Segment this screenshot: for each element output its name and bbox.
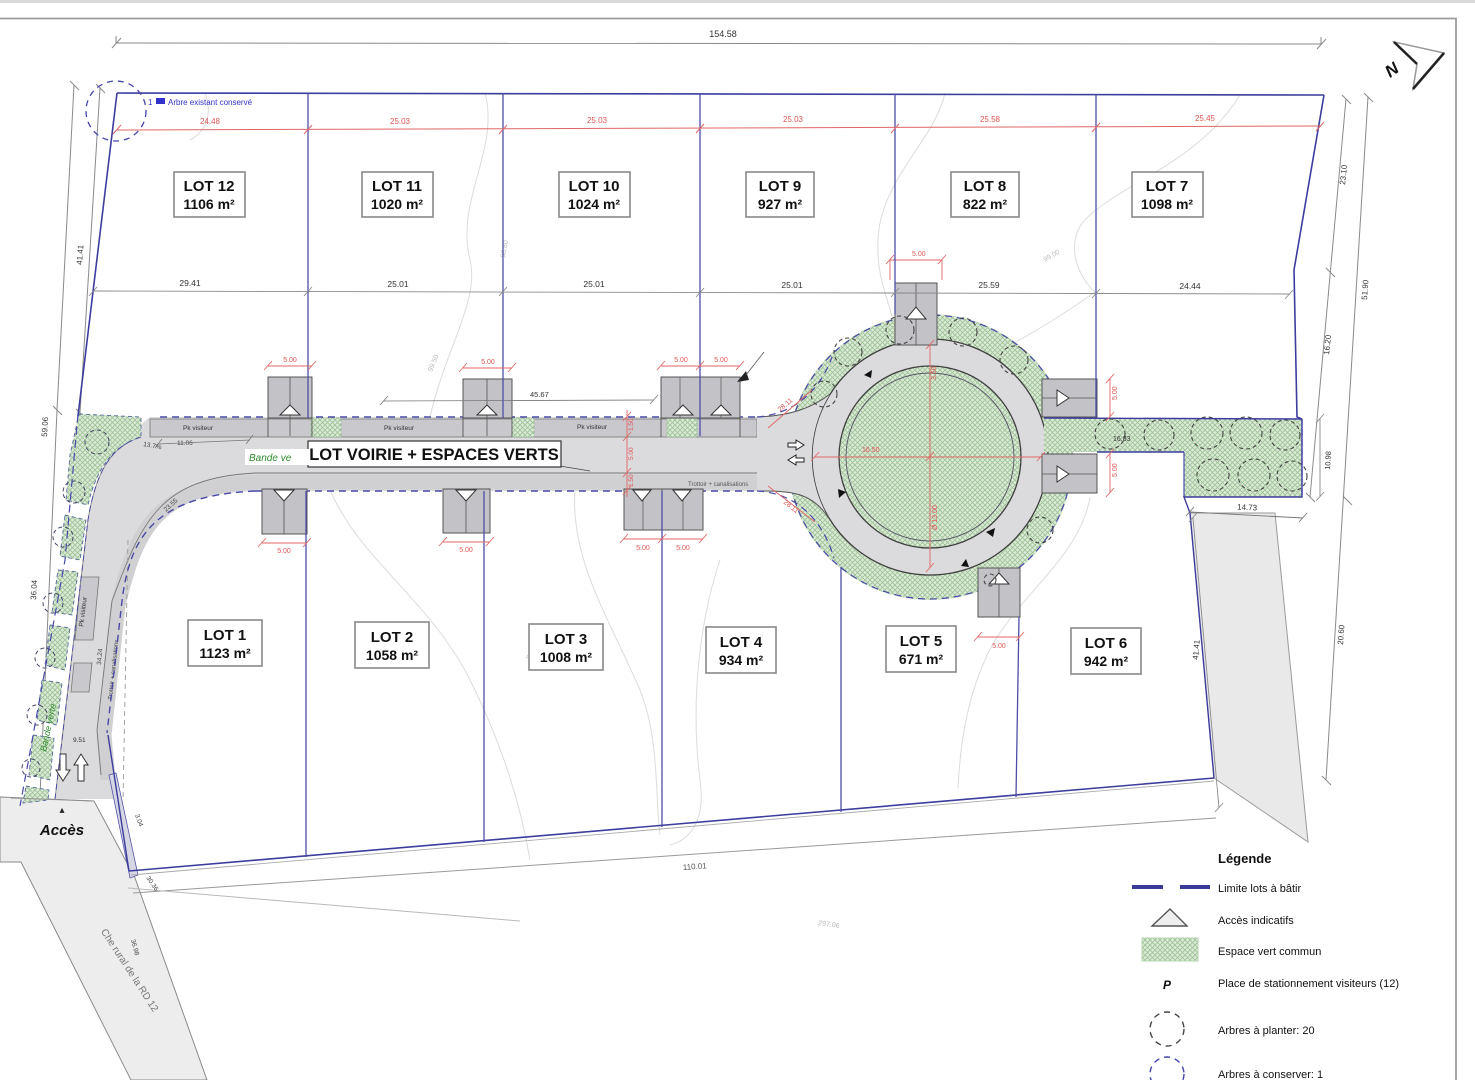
svg-text:3.50: 3.50 <box>931 366 938 380</box>
svg-text:1024 m²: 1024 m² <box>568 196 620 212</box>
svg-text:LOT 12: LOT 12 <box>184 178 235 195</box>
svg-text:1020 m²: 1020 m² <box>371 196 423 212</box>
svg-text:25.03: 25.03 <box>587 116 608 125</box>
svg-text:LOT 5: LOT 5 <box>900 633 943 650</box>
svg-text:LOT 11: LOT 11 <box>372 178 422 195</box>
svg-text:Pk visiteur: Pk visiteur <box>183 425 214 432</box>
svg-text:34.24: 34.24 <box>96 648 104 665</box>
svg-text:25.03: 25.03 <box>783 115 804 124</box>
svg-text:11.06: 11.06 <box>177 440 193 447</box>
svg-text:822 m²: 822 m² <box>963 196 1008 212</box>
svg-text:5.00: 5.00 <box>714 357 728 364</box>
svg-text:1058 m²: 1058 m² <box>366 647 418 663</box>
svg-text:5.00: 5.00 <box>992 643 1006 650</box>
svg-text:Ø 13.00: Ø 13.00 <box>932 505 939 530</box>
svg-text:154.58: 154.58 <box>709 29 737 39</box>
svg-text:LOT 8: LOT 8 <box>964 178 1007 195</box>
svg-text:5.00: 5.00 <box>283 357 297 364</box>
svg-text:934 m²: 934 m² <box>719 652 764 668</box>
svg-text:LOT 7: LOT 7 <box>1146 178 1189 195</box>
svg-text:▴: ▴ <box>59 805 64 816</box>
svg-text:25.01: 25.01 <box>583 279 605 289</box>
svg-text:5.00: 5.00 <box>481 359 495 366</box>
svg-text:9.51: 9.51 <box>73 737 86 744</box>
svg-text:10.98: 10.98 <box>1323 451 1333 470</box>
svg-text:5.00: 5.00 <box>1112 463 1119 477</box>
svg-text:LOT 6: LOT 6 <box>1085 635 1128 652</box>
svg-text:Place de stationnement visiteu: Place de stationnement visiteurs (12) <box>1218 978 1399 990</box>
svg-text:LOT VOIRIE + ESPACES VERTS: LOT VOIRIE + ESPACES VERTS <box>309 446 559 464</box>
svg-text:24.48: 24.48 <box>200 117 221 126</box>
svg-text:LOT 10: LOT 10 <box>569 178 620 195</box>
svg-text:LOT 9: LOT 9 <box>759 178 802 195</box>
svg-text:20.60: 20.60 <box>1336 624 1346 645</box>
svg-text:5.00: 5.00 <box>912 251 926 258</box>
svg-text:1.50: 1.50 <box>628 474 635 487</box>
svg-text:5.00: 5.00 <box>674 357 688 364</box>
svg-text:Limite lots à bâtir: Limite lots à bâtir <box>1218 883 1301 895</box>
svg-text:24.44: 24.44 <box>1179 281 1201 291</box>
svg-text:Accès indicatifs: Accès indicatifs <box>1218 915 1294 927</box>
svg-text:Arbres à conserver: 1: Arbres à conserver: 1 <box>1218 1069 1323 1080</box>
svg-text:1.50: 1.50 <box>628 418 635 431</box>
svg-text:25.01: 25.01 <box>781 280 803 290</box>
svg-text:Légende: Légende <box>1218 851 1271 866</box>
svg-text:25.01: 25.01 <box>387 279 409 289</box>
svg-text:59.06: 59.06 <box>40 416 50 437</box>
svg-text:1098 m²: 1098 m² <box>1141 196 1193 212</box>
svg-text:25.59: 25.59 <box>978 280 1000 290</box>
svg-text:927 m²: 927 m² <box>758 196 803 212</box>
svg-text:LOT 3: LOT 3 <box>545 631 588 648</box>
svg-text:1106 m²: 1106 m² <box>183 196 235 212</box>
svg-text:671 m²: 671 m² <box>899 651 944 667</box>
svg-text:5.00: 5.00 <box>1112 386 1119 400</box>
svg-text:5.00: 5.00 <box>676 545 690 552</box>
svg-text:41.41: 41.41 <box>75 244 85 265</box>
svg-text:1: 1 <box>148 98 153 107</box>
svg-text:1008 m²: 1008 m² <box>540 649 592 665</box>
svg-text:942 m²: 942 m² <box>1084 653 1129 669</box>
svg-text:51.90: 51.90 <box>1360 279 1370 300</box>
svg-text:LOT 1: LOT 1 <box>204 627 247 644</box>
svg-text:5.00: 5.00 <box>636 545 650 552</box>
svg-text:LOT 2: LOT 2 <box>371 629 414 646</box>
svg-text:41.41: 41.41 <box>1191 639 1202 660</box>
svg-text:16.50: 16.50 <box>862 447 880 454</box>
svg-text:Trottoir + canalisations: Trottoir + canalisations <box>688 482 748 488</box>
svg-text:Arbres à planter: 20: Arbres à planter: 20 <box>1218 1025 1315 1037</box>
svg-text:36.04: 36.04 <box>29 579 39 600</box>
svg-text:5.00: 5.00 <box>459 547 473 554</box>
svg-text:29.41: 29.41 <box>179 278 201 288</box>
svg-text:Espace vert commun: Espace vert commun <box>1218 946 1321 958</box>
svg-text:1123 m²: 1123 m² <box>199 645 251 661</box>
svg-text:110.01: 110.01 <box>683 861 708 872</box>
svg-text:25.58: 25.58 <box>980 115 1001 124</box>
svg-text:5.00: 5.00 <box>628 447 635 460</box>
svg-text:16.83: 16.83 <box>1113 436 1131 443</box>
svg-text:25.03: 25.03 <box>390 117 411 126</box>
svg-text:Pk visiteur: Pk visiteur <box>577 424 608 431</box>
svg-text:P: P <box>1163 978 1172 992</box>
svg-text:LOT 4: LOT 4 <box>720 634 763 651</box>
svg-text:14.73: 14.73 <box>1237 502 1258 512</box>
svg-text:Arbre existant conservé: Arbre existant conservé <box>168 98 253 107</box>
svg-text:25.45: 25.45 <box>1195 114 1216 123</box>
svg-text:Bande ve: Bande ve <box>249 453 292 464</box>
svg-text:45.67: 45.67 <box>530 390 549 399</box>
svg-text:5.00: 5.00 <box>277 548 291 555</box>
svg-text:Accès: Accès <box>39 822 84 839</box>
svg-text:Pk visiteur: Pk visiteur <box>384 425 415 432</box>
